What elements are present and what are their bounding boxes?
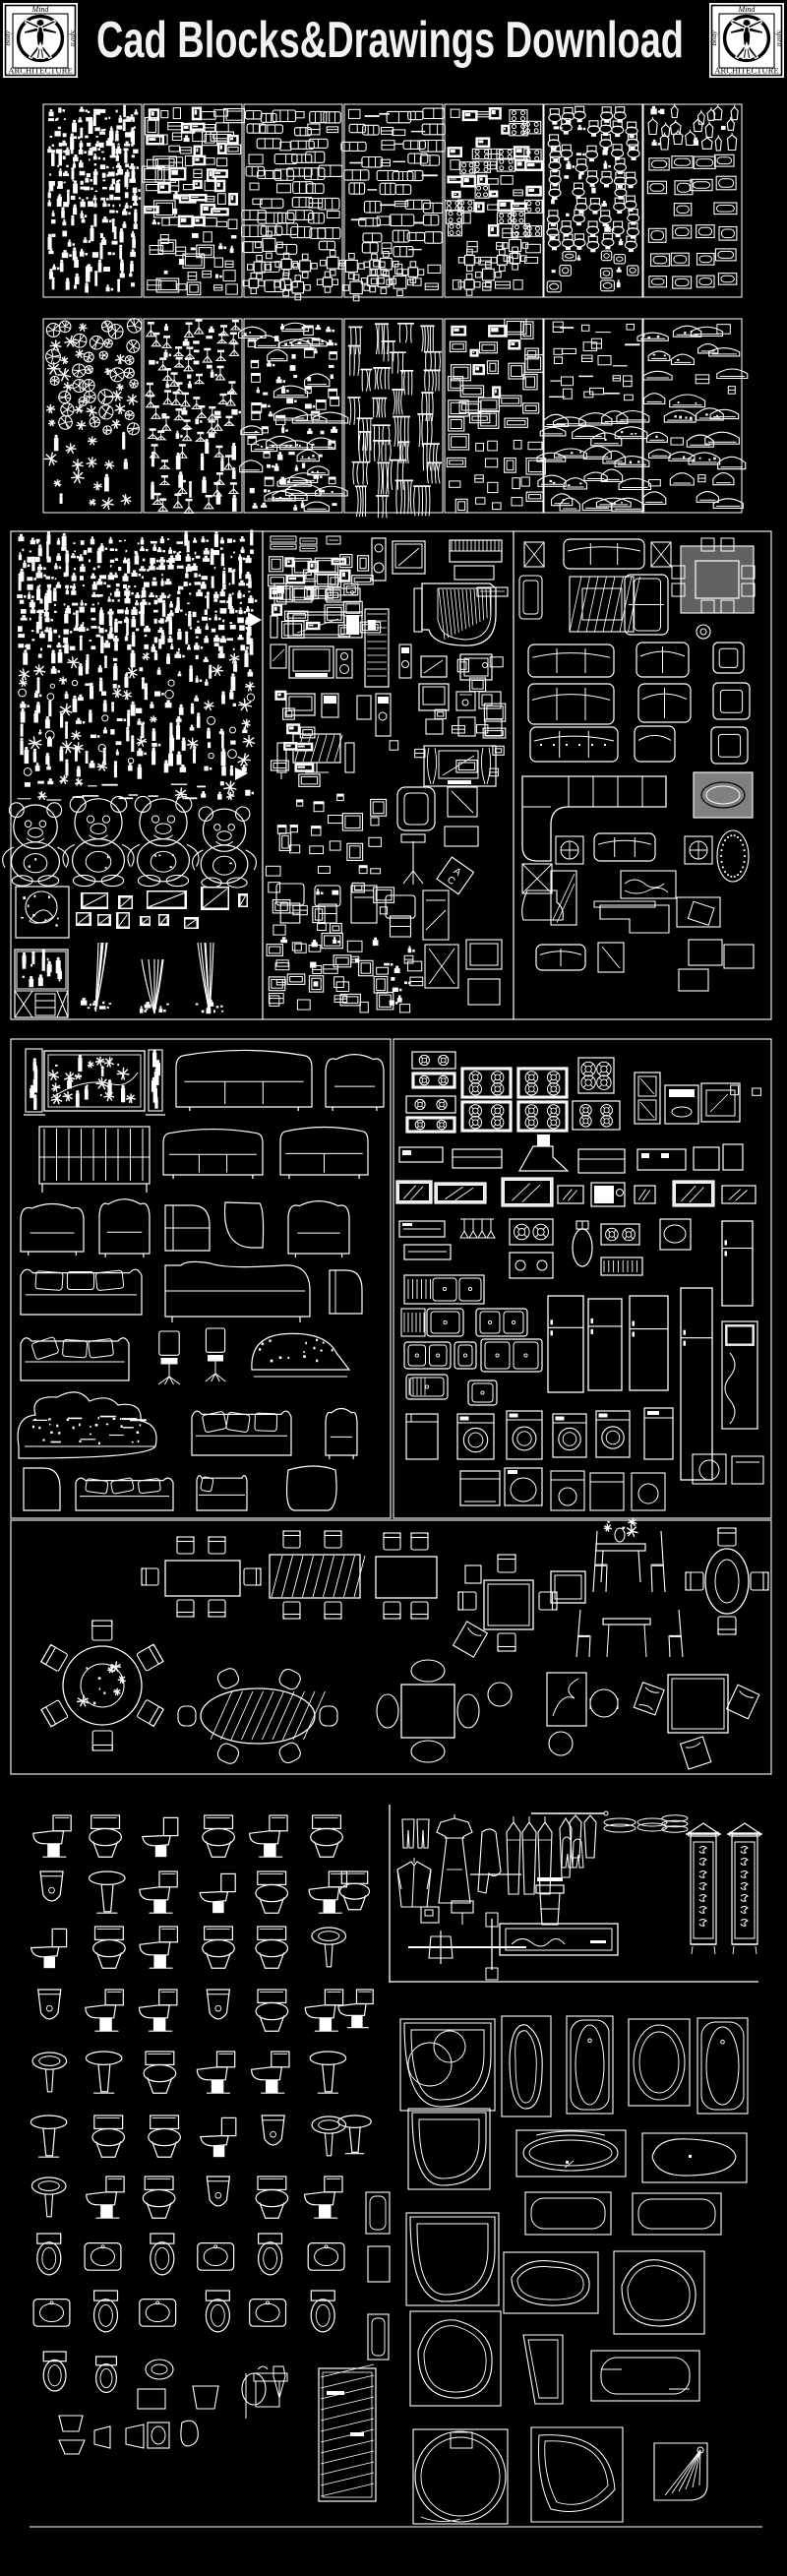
svg-text:Mind: Mind — [31, 5, 50, 14]
svg-text:Spirit: Spirit — [775, 31, 784, 48]
svg-text:Body: Body — [709, 31, 718, 46]
svg-text:Cad Blocks&Drawings Download: Cad Blocks&Drawings Download — [96, 12, 684, 69]
svg-text:Body: Body — [3, 31, 12, 46]
svg-text:Spirit: Spirit — [69, 31, 78, 48]
svg-text:Mind: Mind — [738, 5, 757, 14]
svg-text:ARCHITECTURE: ARCHITECTURE — [714, 66, 778, 76]
svg-text:ARCHITECTURE: ARCHITECTURE — [8, 66, 72, 76]
